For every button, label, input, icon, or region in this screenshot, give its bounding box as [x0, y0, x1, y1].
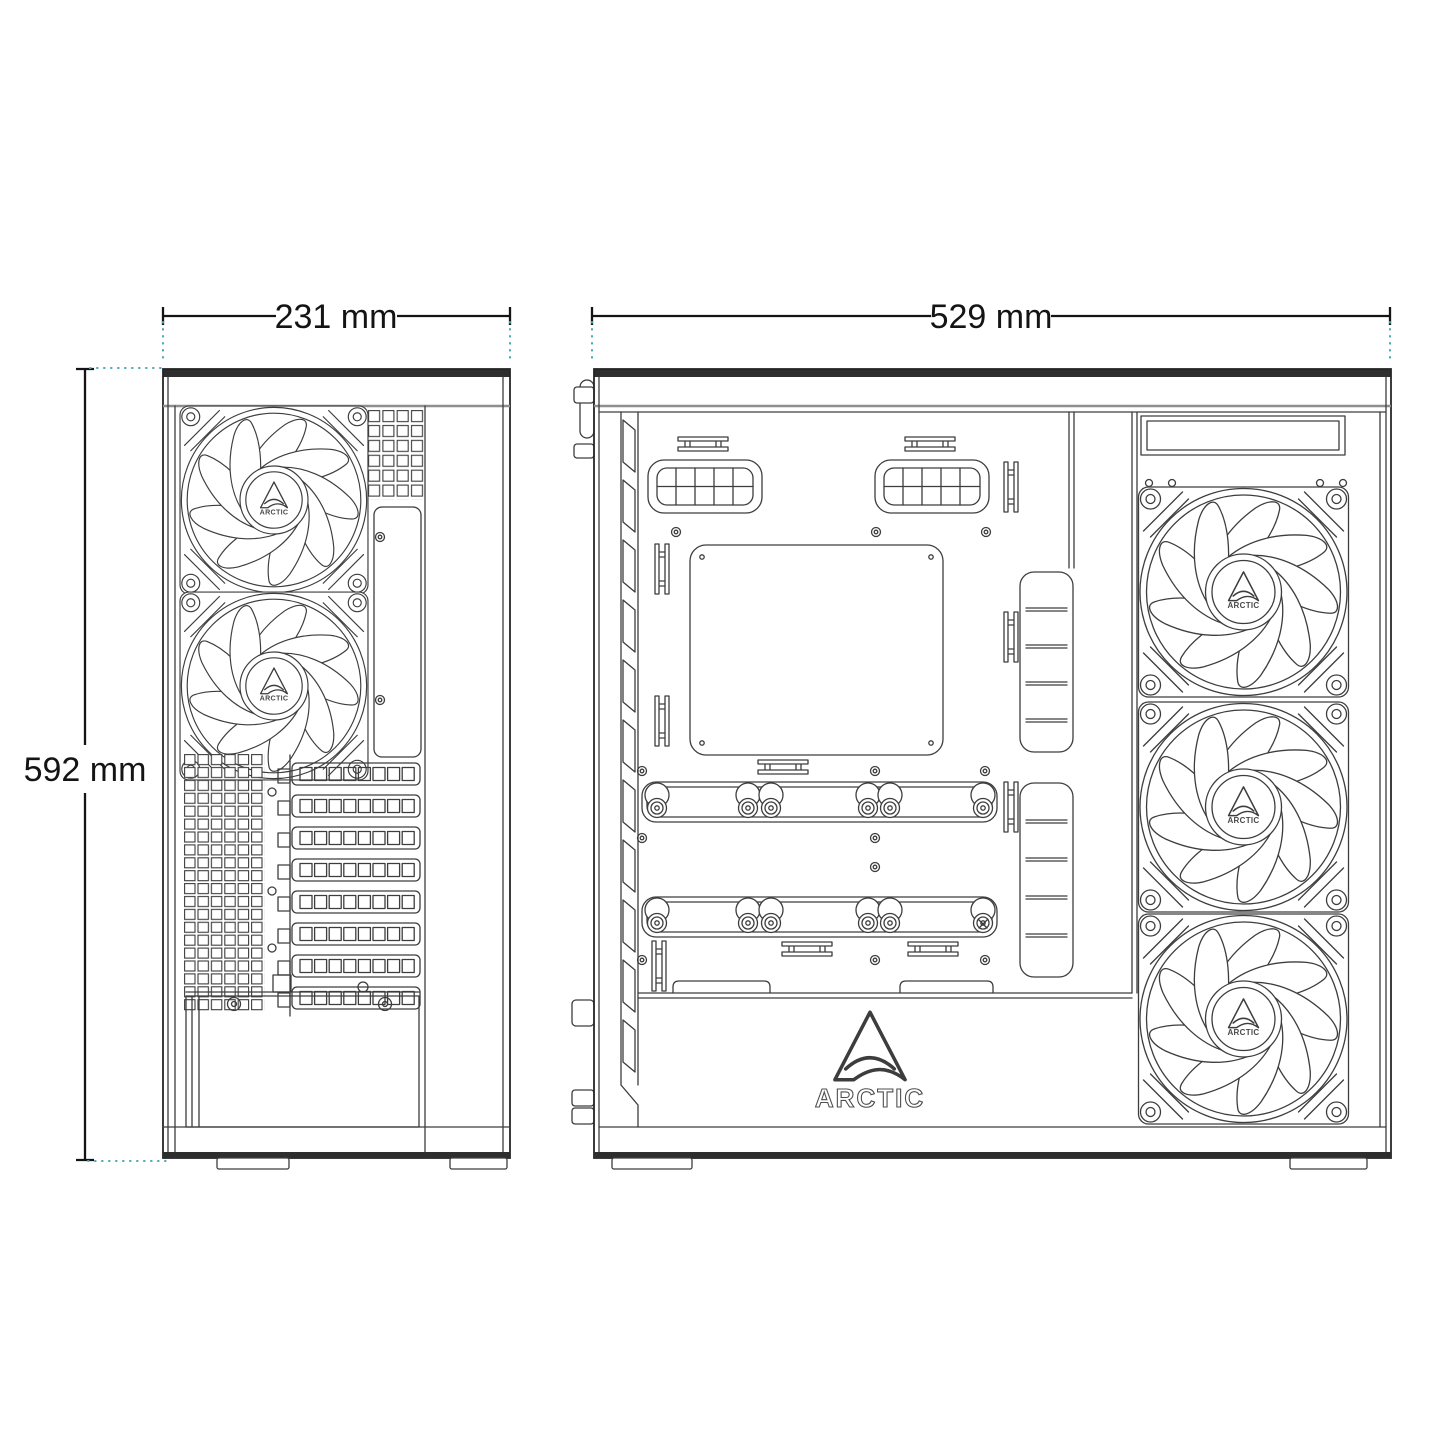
cable-grommet	[875, 460, 989, 513]
dimension-depth: 529 mm	[592, 298, 1390, 364]
shroud-brand-label: ARCTIC	[815, 1083, 925, 1113]
side-top-edge	[594, 369, 1391, 377]
fan-hub-label: ARCTIC	[260, 694, 289, 702]
fan-hub-label: ARCTIC	[1227, 601, 1259, 610]
fan-hub-label: ARCTIC	[1227, 1028, 1259, 1037]
front-fan-2: ARCTIC	[1139, 702, 1349, 912]
front-fan-1: ARCTIC	[1139, 487, 1349, 697]
rear-bottom-edge	[163, 1152, 510, 1158]
depth-label: 529 mm	[930, 298, 1053, 336]
fan-hub-label: ARCTIC	[260, 508, 289, 516]
case-foot	[450, 1158, 507, 1169]
drive-cage	[1141, 416, 1345, 455]
case-foot	[217, 1158, 289, 1169]
cpu-cutout	[690, 545, 943, 755]
arctic-logo-icon: ARCTIC	[815, 1012, 925, 1113]
front-vent-column	[621, 412, 638, 1127]
motherboard-tray	[638, 412, 1075, 991]
technical-drawing-canvas: 231 mm 529 mm 592 mm ARCTIC	[0, 0, 1445, 1445]
rear-fan-top: ARCTIC	[180, 406, 368, 594]
side-view: ARCTIC ARCTIC ARCTIC	[572, 369, 1391, 1169]
drive-rail	[642, 897, 997, 937]
front-width-label: 231 mm	[275, 298, 398, 336]
height-label: 592 mm	[24, 751, 147, 789]
side-bottom-edge	[594, 1152, 1391, 1158]
pc-case-dimension-drawing: 231 mm 529 mm 592 mm ARCTIC	[0, 0, 1445, 1445]
dimension-height: 592 mm	[24, 368, 170, 1161]
rear-vent-grid-top	[368, 410, 425, 499]
drive-rail	[642, 782, 997, 822]
rear-fan-bottom: ARCTIC	[180, 592, 368, 780]
case-foot	[1290, 1158, 1367, 1169]
rear-vent-grid-bottom	[184, 754, 264, 1012]
cable-cover-top	[1020, 572, 1073, 752]
psu-shroud: ARCTIC	[638, 981, 1132, 1113]
rear-top-edge	[163, 369, 510, 377]
rear-panel-thumbscrews	[572, 380, 594, 1124]
fan-hub-label: ARCTIC	[1227, 816, 1259, 825]
front-fan-3: ARCTIC	[1139, 914, 1349, 1124]
cable-cover-bottom	[1020, 783, 1073, 977]
rear-view: ARCTIC ARCTIC	[163, 369, 510, 1169]
dimension-front-width: 231 mm	[163, 298, 510, 364]
case-foot	[612, 1158, 692, 1169]
rear-side-bracket	[374, 507, 421, 757]
cable-grommet	[648, 460, 762, 513]
